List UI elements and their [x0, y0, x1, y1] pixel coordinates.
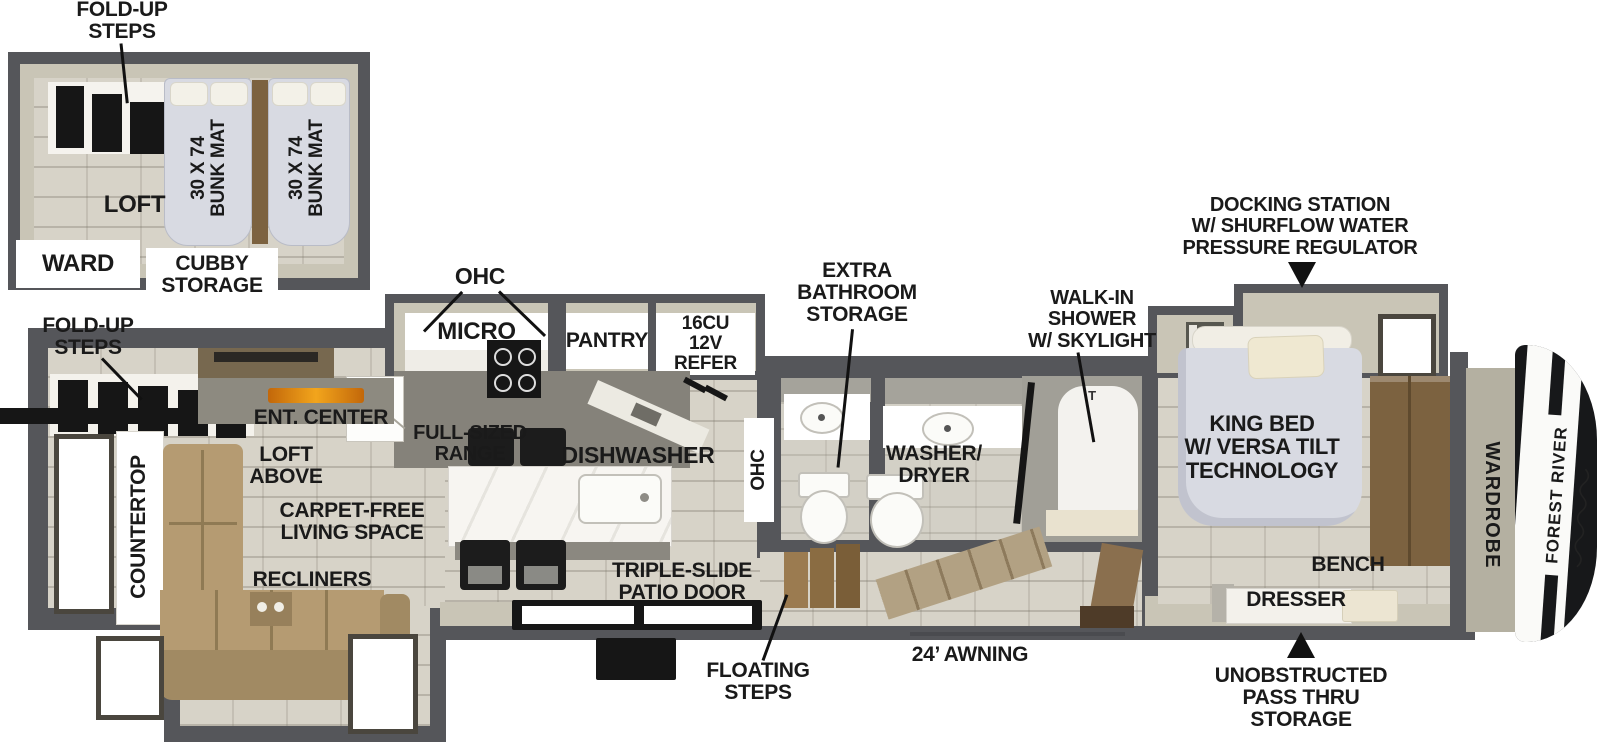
bar-stool	[460, 540, 510, 590]
pass-thru-label: UNOBSTRUCTED PASS THRU STORAGE	[1206, 664, 1396, 732]
drain-icon	[818, 414, 825, 421]
faucet-icon	[640, 493, 649, 502]
bunk-mat-label: 30 X 74 BUNK MAT	[285, 93, 329, 243]
door-glass	[644, 606, 752, 624]
cubby-storage-cabinet: CUBBY STORAGE	[146, 248, 278, 302]
bunk-mat-label: 30 X 74 BUNK MAT	[187, 93, 231, 243]
wall	[648, 303, 656, 371]
bench-label: BENCH	[1294, 552, 1402, 578]
dresser-label: DRESSER	[1230, 586, 1362, 614]
storage-hatch	[1080, 606, 1134, 628]
floating-step	[784, 552, 808, 608]
loft-above-label: LOFT ABOVE	[246, 444, 326, 488]
floorplan-canvas: 30 X 74 BUNK MAT 30 X 74 BUNK MAT LOFT W…	[0, 0, 1600, 743]
bed-pillow	[1247, 335, 1324, 380]
refrigerator: 16CU 12V REFER	[656, 313, 755, 375]
awning-line	[910, 632, 1125, 636]
ent-center-label: ENT. CENTER	[248, 405, 394, 431]
carpet-free-label: CARPET-FREE LIVING SPACE	[276, 500, 428, 544]
kitchen-sink	[578, 474, 662, 524]
door-glass	[522, 606, 634, 624]
loft-fold-up-steps-label: FOLD-UP STEPS	[60, 0, 184, 42]
recliner-console	[250, 592, 292, 626]
closet-door-seam	[1408, 376, 1411, 566]
pass-thru-arrow-icon	[1287, 632, 1315, 658]
stool-seat	[524, 566, 558, 584]
entry-step	[596, 638, 676, 680]
living-fold-up-steps-label: FOLD-UP STEPS	[34, 316, 142, 358]
awning-label: 24’ AWNING	[898, 642, 1042, 668]
cup-holder-icon	[257, 602, 267, 612]
bathroom-sink	[800, 402, 844, 434]
triple-slide-label: TRIPLE-SLIDE PATIO DOOR	[600, 560, 764, 604]
closet-slide	[1370, 376, 1450, 566]
burner-icon	[518, 374, 536, 392]
loft-step-block	[130, 102, 164, 154]
cushion-seam	[215, 590, 218, 652]
cushion-seam	[325, 590, 328, 652]
countertop-label: COUNTERTOP	[128, 437, 150, 617]
extra-bath-storage-label: EXTRA BATHROOM STORAGE	[792, 260, 922, 326]
wall	[757, 356, 1157, 378]
pantry-cabinet: PANTRY	[566, 313, 648, 369]
wardrobe-label: WARDROBE	[1480, 423, 1502, 587]
range-cooktop	[487, 340, 541, 398]
wall	[28, 328, 48, 628]
ward-cabinet: WARD	[16, 240, 140, 288]
loft-step-block	[92, 94, 122, 152]
main-bath-counter-shadow	[885, 378, 1025, 404]
recliners-label: RECLINERS	[250, 566, 374, 594]
range-label: FULL-SIZED RANGE	[408, 422, 532, 466]
toilet	[870, 492, 924, 548]
bunk-divider	[252, 80, 268, 244]
fold-up-step	[58, 380, 88, 432]
fold-up-step	[138, 386, 168, 436]
dishwasher-label: DISHWASHER	[566, 440, 710, 470]
floating-step	[810, 548, 834, 608]
floating-steps-label: FLOATING STEPS	[704, 660, 812, 704]
cup-holder-icon	[274, 602, 284, 612]
drain-icon	[944, 425, 951, 432]
ohc-side-label: OHC	[749, 440, 769, 500]
shower-bench	[1046, 510, 1138, 536]
fold-up-step	[98, 382, 128, 434]
floating-step	[836, 544, 860, 608]
docking-station-label: DOCKING STATION W/ SHURFLOW WATER PRESSU…	[1182, 194, 1418, 260]
living-window	[54, 434, 114, 614]
loft-step-block	[56, 86, 84, 148]
ohc-label: OHC	[452, 262, 508, 290]
king-bed-label: KING BED W/ VERSA TILT TECHNOLOGY	[1162, 414, 1362, 480]
washer-dryer-label: WASHER/ DRYER	[874, 442, 994, 488]
slide-window	[348, 634, 418, 734]
walk-in-shower-label: WALK-IN SHOWER W/ SKYLIGHT	[1026, 288, 1158, 352]
fireplace-icon	[268, 388, 364, 403]
bar-stool	[516, 540, 566, 590]
burner-icon	[494, 374, 512, 392]
wall	[548, 303, 566, 371]
front-cap: FOREST RIVER	[1515, 345, 1597, 642]
appliance-icon	[630, 402, 661, 426]
bedroom-window	[1378, 314, 1436, 378]
sofa-chaise	[163, 444, 243, 606]
toilet	[800, 490, 848, 544]
slide-window	[96, 636, 164, 720]
stool-seat	[468, 566, 502, 584]
tv-icon	[214, 352, 318, 362]
loft-label: LOFT	[92, 190, 177, 220]
bathroom-sink	[922, 412, 974, 446]
burner-icon	[518, 348, 536, 366]
docking-arrow-icon	[1288, 262, 1316, 288]
cushion-seam	[201, 450, 204, 600]
burner-icon	[494, 348, 512, 366]
patio-door	[512, 600, 762, 630]
